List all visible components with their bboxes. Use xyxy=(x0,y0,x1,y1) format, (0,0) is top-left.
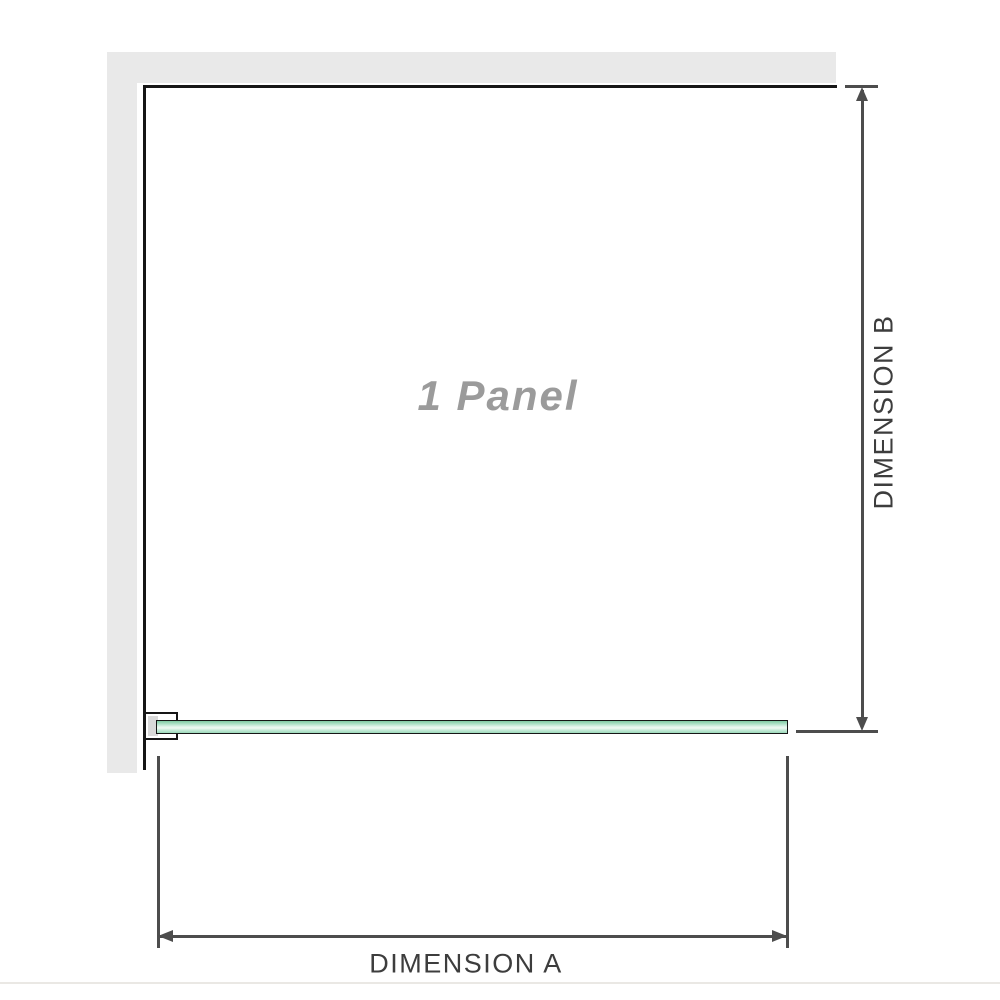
wall-top xyxy=(107,52,836,83)
dimension-b-label: DIMENSION B xyxy=(869,314,900,509)
dimension-b-arrow-down-icon xyxy=(856,717,868,731)
page-divider-line xyxy=(0,982,1000,984)
dimension-a-line xyxy=(158,935,787,938)
wall-left xyxy=(107,52,137,773)
dimension-a-label: DIMENSION A xyxy=(369,949,563,980)
panel-count-watermark: 1 Panel xyxy=(417,372,578,420)
wall-inner-line-top xyxy=(143,85,837,88)
panel-dimension-diagram: DIMENSION B DIMENSION A 1 Panel xyxy=(0,0,1000,1000)
dimension-b-line xyxy=(861,90,864,720)
glass-panel xyxy=(156,720,788,734)
dimension-a-arrow-left-icon xyxy=(158,930,173,942)
wall-inner-line-left xyxy=(143,85,146,770)
dimension-a-arrow-right-icon xyxy=(772,930,787,942)
dimension-b-arrow-up-icon xyxy=(856,87,868,101)
dimension-a-extension-left xyxy=(157,756,160,948)
dimension-a-extension-right xyxy=(786,756,789,948)
